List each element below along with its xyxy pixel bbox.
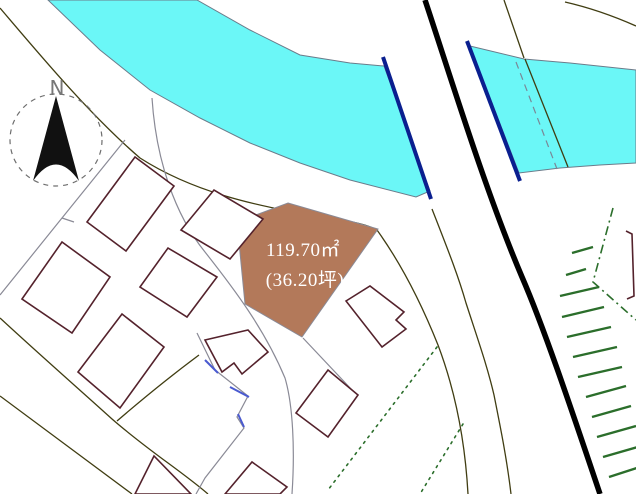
boundary-line-above-river [504,0,524,58]
building-outline [140,248,217,317]
building-outline [225,462,287,494]
contour-curve-top-right [565,2,636,26]
street-west-stub [62,218,74,222]
site-map: 119.70㎡ (36.20坪) N [0,0,636,494]
building-outline [296,370,358,437]
parcel-area-label: 119.70㎡ [266,238,340,261]
north-label: N [50,76,65,100]
south-road-east-line [432,209,511,494]
vegetation-dashdot-line [593,208,636,320]
building-outline [78,314,164,408]
building-outline-partial [626,231,634,299]
compass-icon: N [10,76,102,186]
slope-hatching [560,247,636,477]
building-outline [22,242,110,333]
waterline-segment [230,387,249,397]
vegetation-dotted-line [420,424,463,494]
building-outline [205,330,268,374]
river-main [48,0,430,197]
north-arrow-icon [33,96,79,181]
parcel-area-tsubo-label: (36.20坪) [266,269,344,291]
building-outline [346,286,406,347]
southwest-road-south-line [0,396,132,494]
building-outline [135,456,191,494]
vegetation-dotted-line [328,347,437,490]
